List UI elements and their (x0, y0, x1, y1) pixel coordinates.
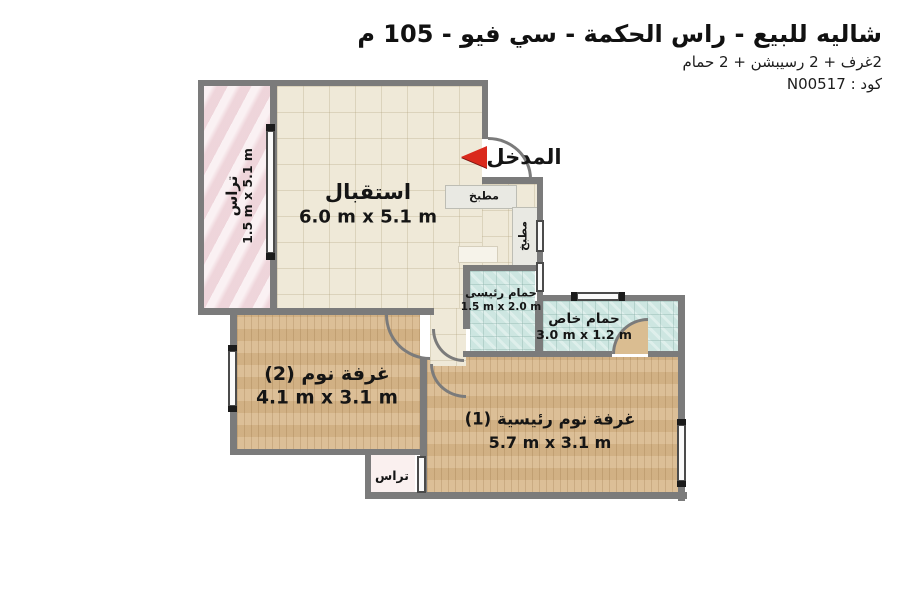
bathroom-private-dims: 3.0 m x 1.2 m (536, 328, 632, 342)
window-cap (619, 292, 625, 301)
window-terrace-small (417, 456, 426, 493)
bathroom-main-name: حمام رئيسى (465, 286, 537, 299)
wall-corridor-top (482, 177, 543, 184)
wall-top (198, 80, 488, 86)
terrace-left-dims: 1.5 m x 5.1 m (241, 148, 255, 244)
window-cap (266, 124, 275, 131)
wall-bathroom-main-top (463, 265, 540, 271)
window-terrace-reception (266, 130, 275, 254)
bathroom-private-name: حمام خاص (548, 312, 619, 328)
floorplan-page: { "header": { "title": "شاليه للبيع - را… (0, 0, 900, 600)
window-cap (228, 345, 237, 351)
floor-plan: المدخل استقبال 6.0 m x 5.1 m تراس 1.5 m … (0, 0, 900, 600)
window-cap (677, 481, 686, 487)
window-cap (228, 406, 237, 412)
reception-dims: 6.0 m x 5.1 m (299, 208, 437, 229)
wall-bedrooms-top-a (463, 351, 612, 357)
window-corridor-lower (536, 262, 544, 292)
entrance-arrow-icon (461, 146, 487, 168)
bedroom-main-dims: 5.7 m x 3.1 m (489, 434, 612, 452)
wall-reception-right-upper (482, 86, 488, 139)
window-cap (266, 253, 275, 260)
window-cap (571, 292, 577, 301)
kitchen-label-top: مطبخ (469, 191, 499, 204)
wall-bedroom2-bottom (230, 449, 426, 455)
cabinet (458, 246, 498, 263)
bathroom-main-dims: 1.5 m x 2.0 m (461, 301, 541, 313)
terrace-left-label: تراس 1.5 m x 5.1 m (224, 148, 256, 244)
window-bathroom-private-top (576, 292, 620, 301)
entrance-label: المدخل (486, 145, 561, 169)
bedroom2-name: غرفة نوم (2) (264, 364, 390, 386)
wall-left-exterior (198, 80, 204, 315)
window-bedroom-main-right (677, 424, 686, 482)
window-corridor-upper (536, 220, 544, 252)
terrace-left-name: تراس (224, 148, 241, 244)
kitchen-label-side: مطبخ (518, 221, 531, 251)
wall-bottom-exterior (365, 492, 687, 499)
window-cap (677, 419, 686, 425)
reception-name: استقبال (325, 180, 411, 204)
wall-bedrooms-top-b (648, 351, 680, 357)
bedroom2-dims: 4.1 m x 3.1 m (256, 387, 398, 408)
terrace-small-name: تراس (375, 469, 409, 483)
bedroom-main-name: غرفة نوم رئيسية (1) (465, 411, 636, 430)
window-bedroom2-left (228, 350, 237, 407)
